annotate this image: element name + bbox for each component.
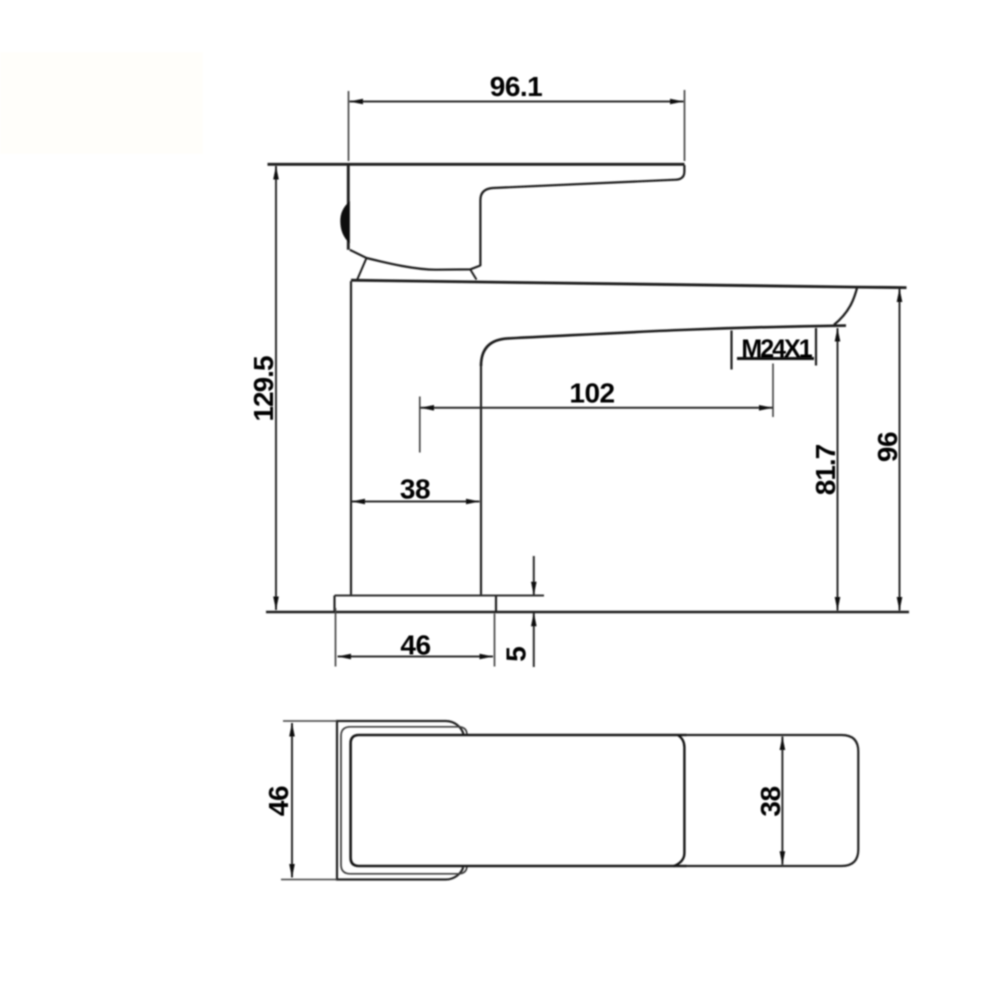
svg-text:38: 38	[400, 474, 430, 505]
svg-text:81.7: 81.7	[810, 444, 841, 495]
svg-text:46: 46	[400, 630, 430, 661]
svg-text:46: 46	[263, 786, 294, 816]
svg-text:129.5: 129.5	[248, 356, 279, 421]
svg-text:38: 38	[755, 786, 786, 816]
svg-text:5: 5	[501, 646, 532, 662]
svg-text:102: 102	[569, 378, 614, 409]
svg-text:96.1: 96.1	[490, 71, 543, 102]
svg-text:96: 96	[872, 432, 903, 462]
